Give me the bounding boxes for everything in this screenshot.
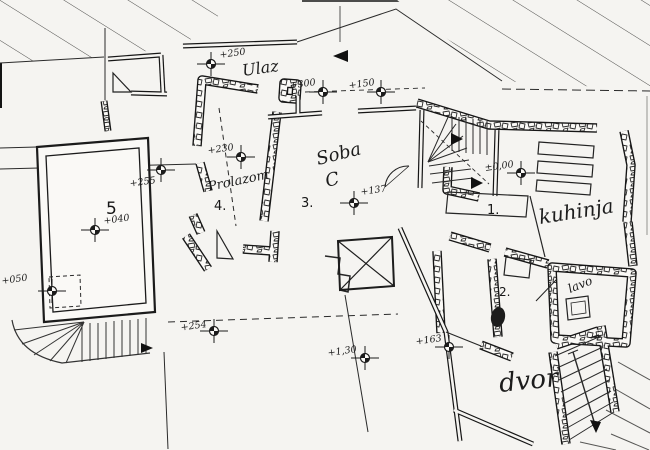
- room-label-dvor: dvor: [498, 363, 562, 399]
- room-label-room-1: 1.: [487, 203, 499, 218]
- room-label-room-2: 2.: [499, 285, 510, 299]
- room-label-room-3: 3.: [301, 196, 313, 211]
- floor-plan-drawing: 5UlazProlazom4.SobaC3.1.kuhinja2.lavodvo…: [0, 0, 650, 450]
- room-label-room-4: 4.: [214, 199, 226, 214]
